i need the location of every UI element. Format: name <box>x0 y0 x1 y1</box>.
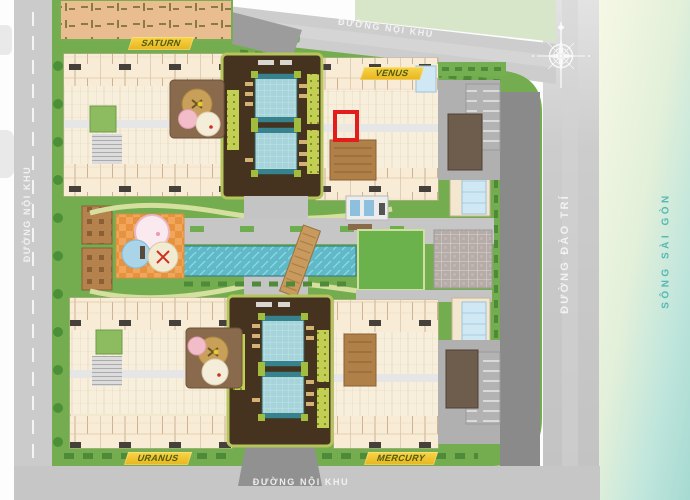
road-label-top: ĐƯỜNG NỘI KHU <box>316 14 456 42</box>
site-plan: ĐƯỜNG NỘI KHU ĐƯỜNG NỘI KHU ĐƯỜNG NỘI KH… <box>0 0 690 500</box>
tower-label-mercury: MERCURY <box>364 452 438 465</box>
river-label: SÔNG SÀI GÒN <box>661 191 672 311</box>
tower-label-uranus: URANUS <box>124 452 192 465</box>
tower-label-venus: VENUS <box>360 67 424 80</box>
tower-label-saturn: SATURN <box>128 37 194 50</box>
selected-unit-marker[interactable] <box>333 110 359 142</box>
road-label-bottom: ĐƯỜNG NỘI KHU <box>236 477 366 487</box>
labels-layer: ĐƯỜNG NỘI KHU ĐƯỜNG NỘI KHU ĐƯỜNG NỘI KH… <box>0 0 690 500</box>
road-label-dao-tri: ĐƯỜNG ĐÀO TRÍ <box>559 194 571 314</box>
road-label-left: ĐƯỜNG NỘI KHU <box>22 162 32 266</box>
